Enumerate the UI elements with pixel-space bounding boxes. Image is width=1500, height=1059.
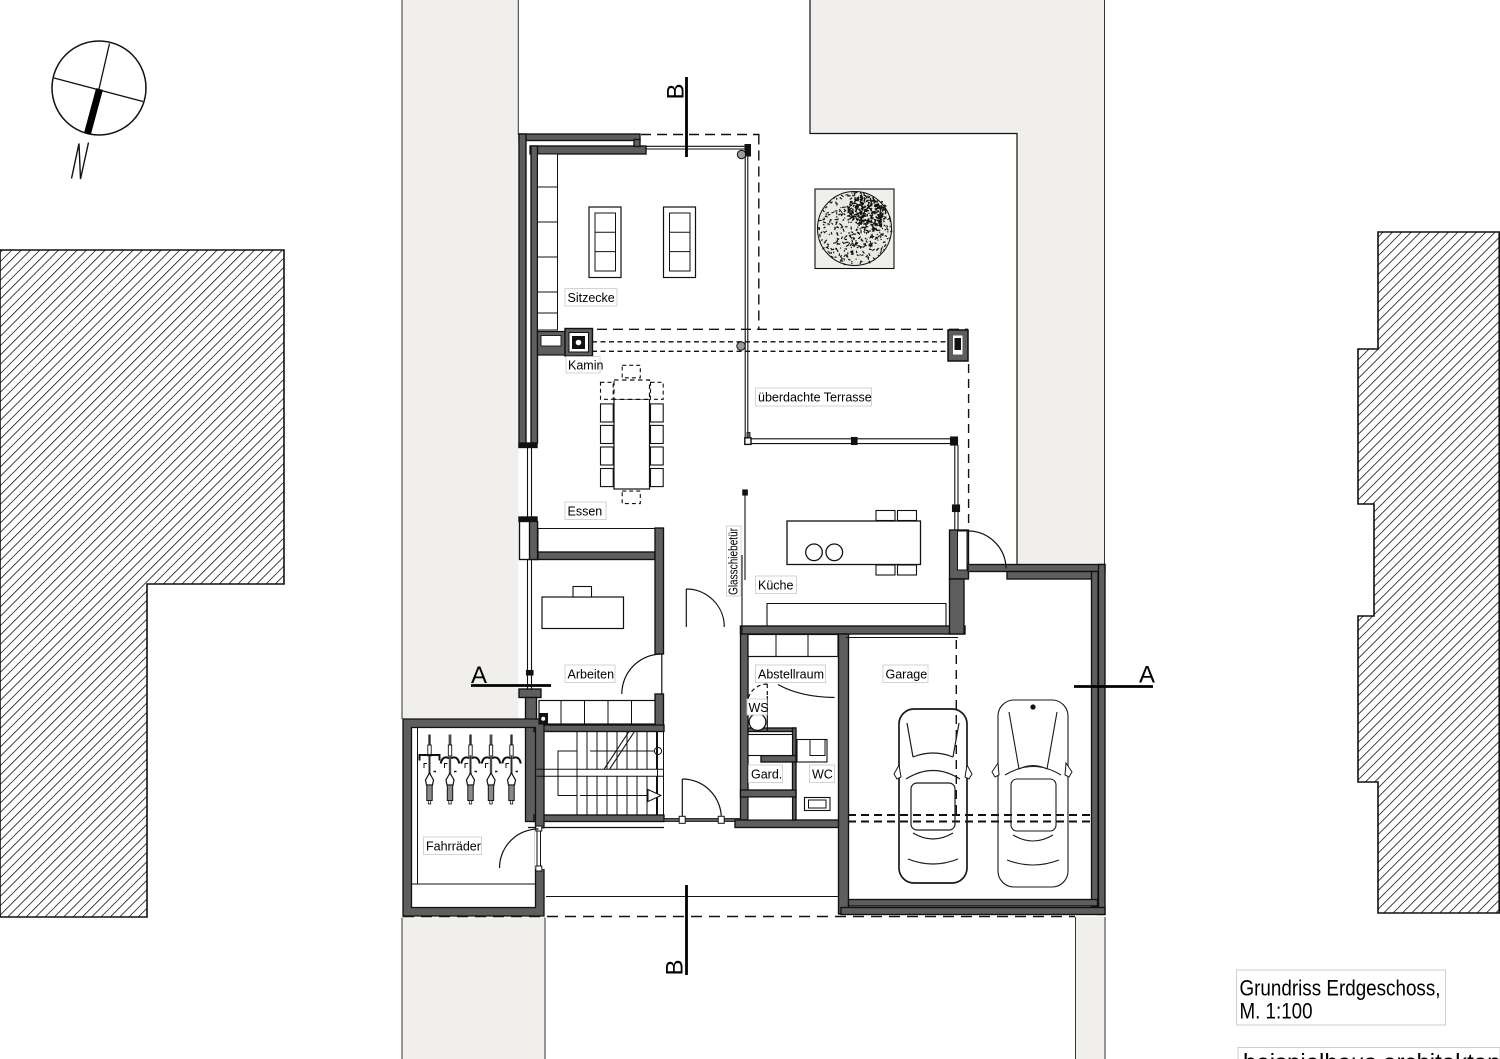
svg-text:überdachte Terrasse: überdachte Terrasse [758,391,872,405]
svg-text:WC: WC [812,768,833,782]
svg-text:Arbeiten: Arbeiten [568,668,615,682]
svg-text:Abstellraum: Abstellraum [758,668,824,682]
svg-text:Garage: Garage [886,668,928,682]
svg-text:Fahrräder: Fahrräder [426,840,481,854]
svg-text:beispielhaus architekten: beispielhaus architekten [1243,1050,1500,1059]
svg-text:Kamin: Kamin [568,359,603,373]
svg-text:M. 1:100: M. 1:100 [1240,999,1313,1024]
svg-text:WS: WS [749,701,769,715]
svg-text:Küche: Küche [758,579,793,593]
svg-text:B: B [663,83,690,99]
svg-text:Sitzecke: Sitzecke [568,291,615,305]
svg-text:Glasschiebetür: Glasschiebetür [727,528,741,595]
svg-text:Grundriss Erdgeschoss,: Grundriss Erdgeschoss, [1240,976,1441,1001]
svg-text:A: A [471,662,487,689]
svg-text:A: A [1139,662,1155,689]
svg-text:Essen: Essen [568,505,603,519]
svg-text:Gard.: Gard. [751,768,782,782]
svg-text:B: B [662,959,689,975]
